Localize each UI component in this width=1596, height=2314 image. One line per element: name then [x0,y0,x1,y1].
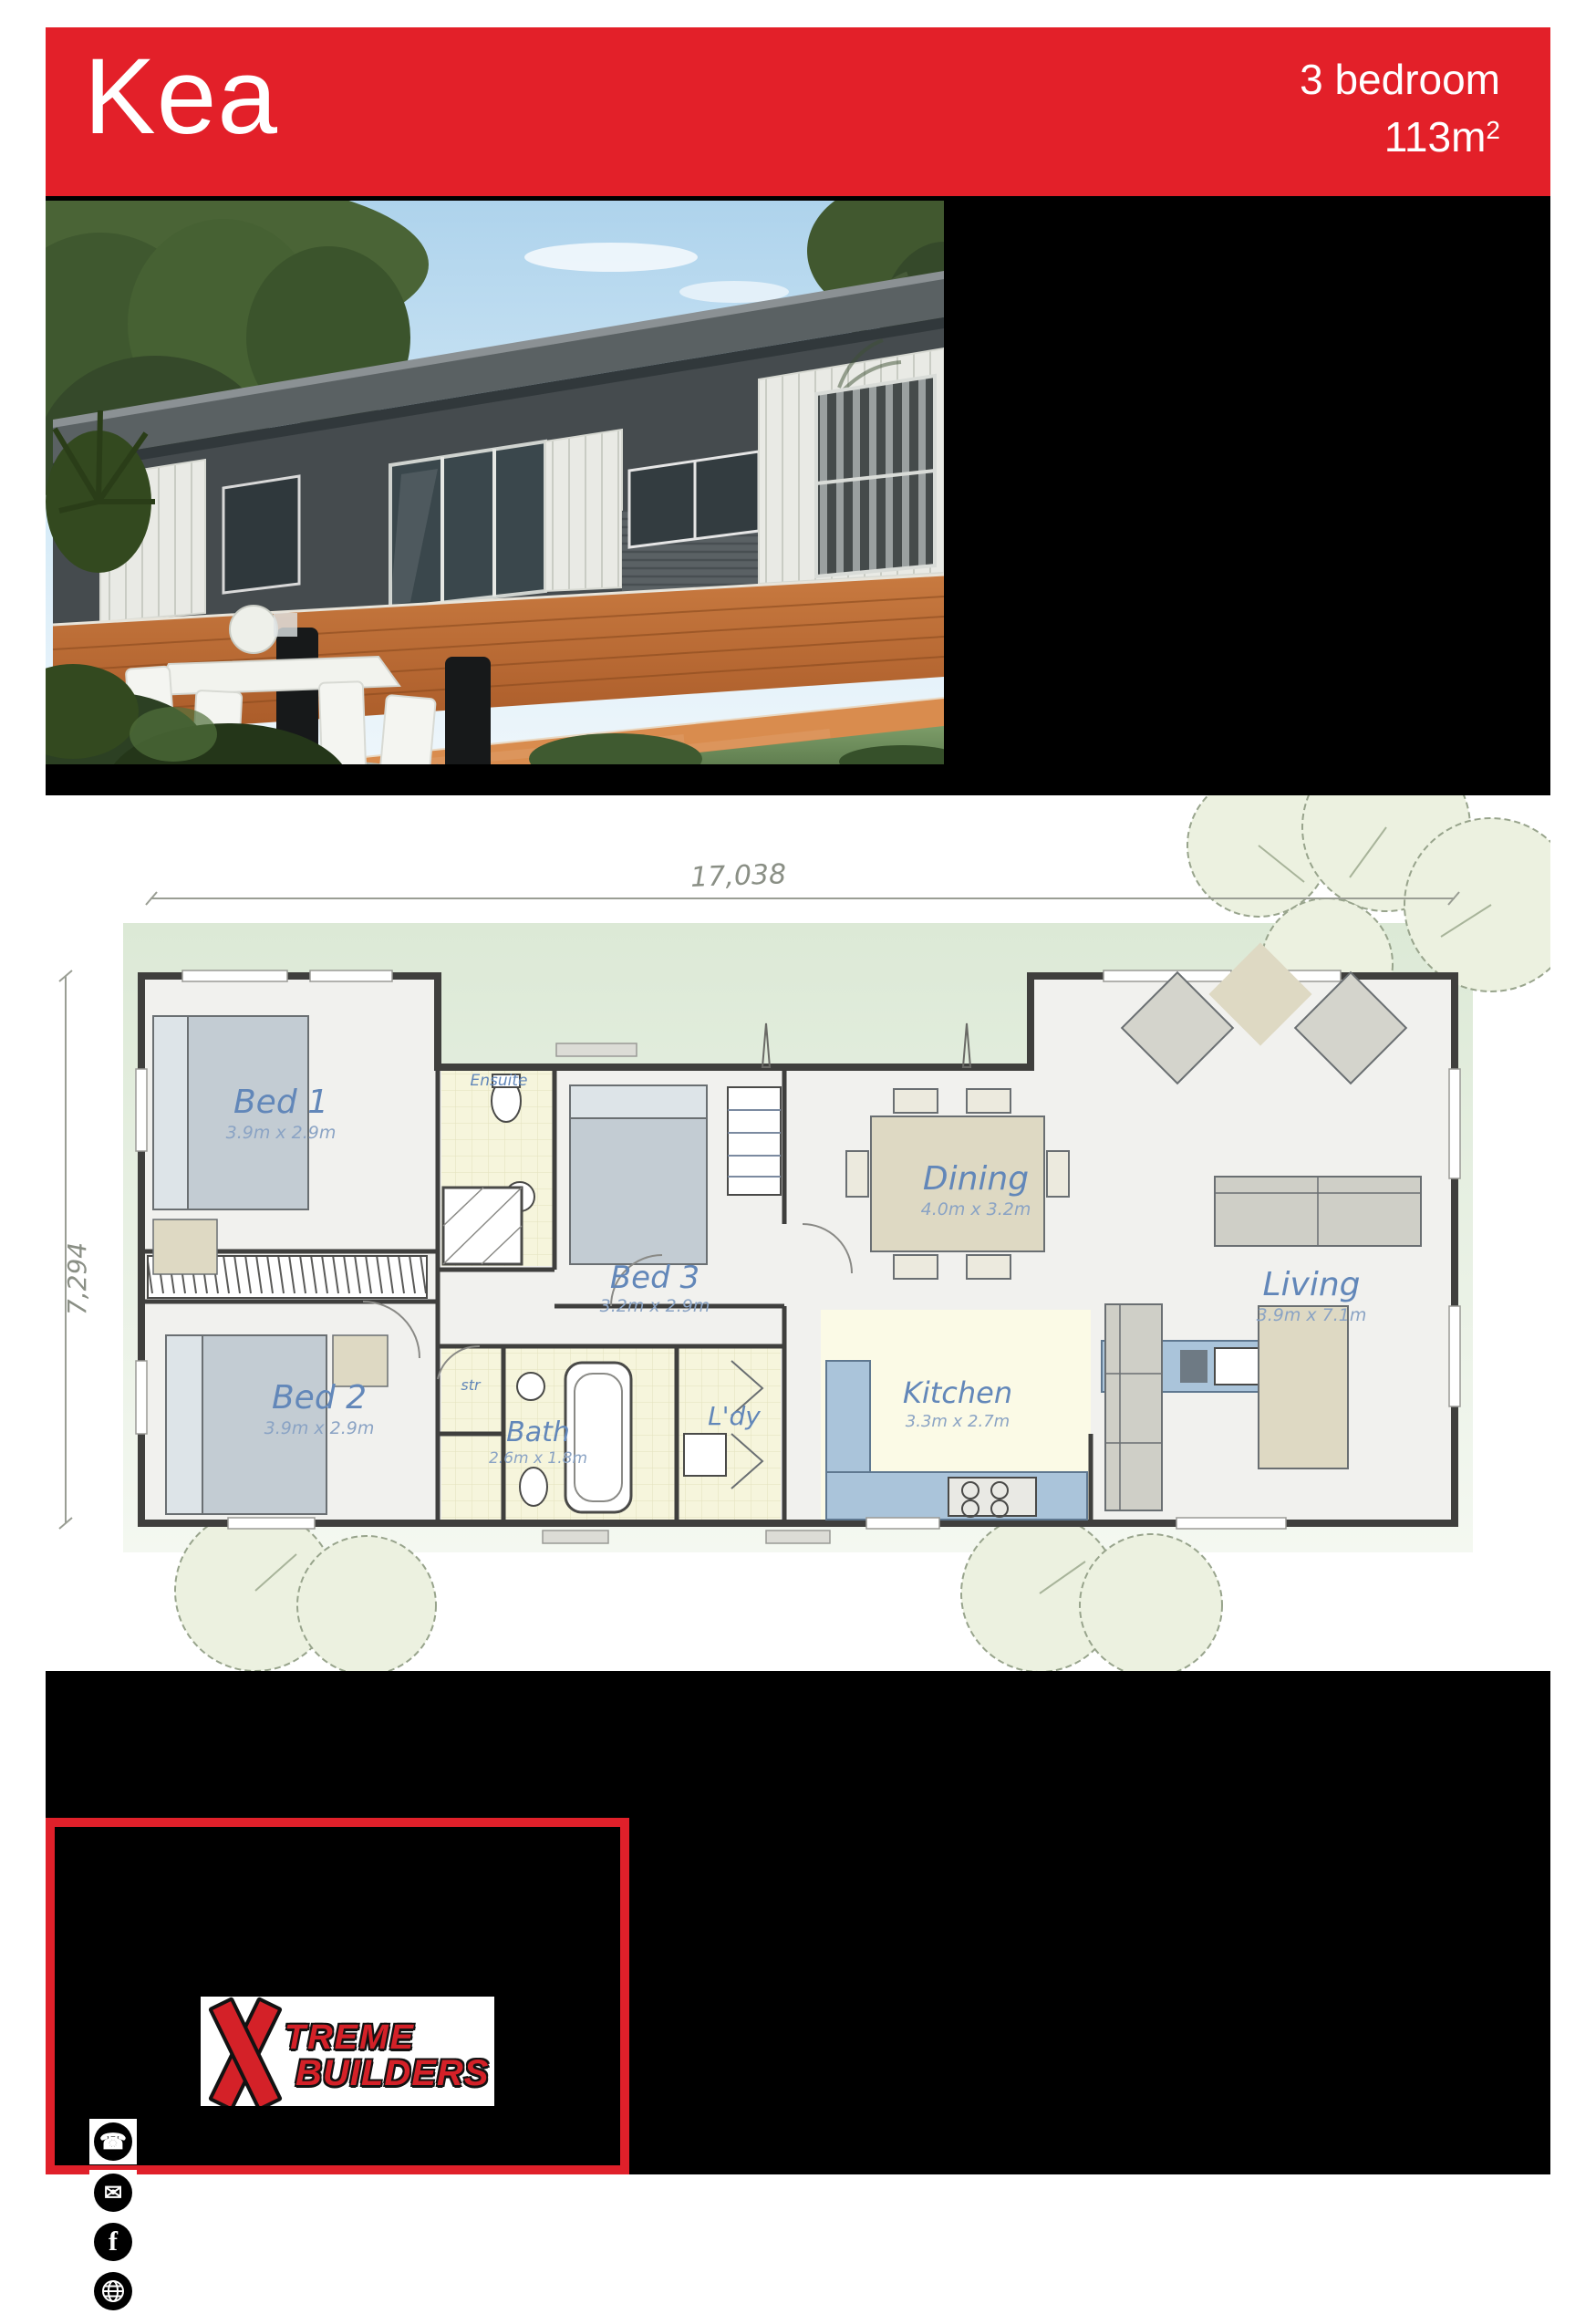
room-label-bath: Bath [506,1416,570,1448]
room-label-bed3: Bed 3 [610,1260,700,1296]
media-panel [46,196,1550,795]
room-dims-bath: 2.6m x 1.8m [489,1449,587,1468]
facebook-glyph: f [109,2226,118,2257]
room-label-ldy: L'dy [708,1401,761,1431]
plan-spec: 3 bedroom 113m2 [1300,51,1500,167]
footer-panel: TREME BUILDERS ☎ ✉ f [46,1671,1550,2174]
bedroom-count: 3 bedroom [1300,51,1500,109]
phone-icon: ☎ [89,2119,137,2164]
room-label-bed2: Bed 2 [272,1379,367,1416]
email-icon: ✉ [89,2170,137,2215]
room-label-kitchen: Kitchen [903,1375,1012,1410]
brochure-page: { "header": { "title": "Kea", "spec_line… [0,0,1596,2220]
builder-logo-box: TREME BUILDERS ☎ ✉ f [46,1818,629,2174]
room-dims-living: 3.9m x 7.1m [1257,1305,1367,1325]
phone-glyph: ☎ [99,2129,127,2155]
house-render-art [46,201,944,764]
globe-glyph [100,2278,126,2304]
facebook-icon: f [89,2219,137,2265]
room-dims-kitchen: 3.3m x 2.7m [906,1412,1010,1431]
room-dims-bed3: 3.2m x 2.9m [600,1296,710,1316]
linen-shelf [728,1087,781,1195]
plan-title: Kea [84,35,278,159]
room-label-str: str [461,1376,482,1394]
room-dims-bed2: 3.9m x 2.9m [264,1418,375,1438]
dimension-depth-label: 7,294 [62,1242,92,1315]
logo-word-xtreme: TREME [285,2018,415,2058]
builder-logo: TREME BUILDERS [201,1997,494,2106]
room-dims-bed1: 3.9m x 2.9m [226,1123,337,1143]
floor-plan-section: 17,038 7,294 [46,795,1550,1671]
email-glyph: ✉ [104,2180,122,2206]
room-label-living: Living [1262,1266,1360,1303]
header-banner: Kea 3 bedroom 113m2 [46,27,1550,196]
room-label-ensuite: Ensuite [471,1072,528,1090]
dimension-width-label: 17,038 [690,858,787,894]
room-label-dining: Dining [923,1160,1029,1198]
globe-icon [89,2268,137,2314]
room-dims-dining: 4.0m x 3.2m [921,1199,1031,1219]
dimension-depth: 7,294 [59,970,92,1529]
floor-area: 113m2 [1300,109,1500,166]
house-render-photo [46,201,944,764]
logo-word-builders: BUILDERS [295,2053,489,2094]
room-label-bed1: Bed 1 [233,1084,328,1121]
floor-plan-drawing: 17,038 7,294 [46,795,1550,1671]
